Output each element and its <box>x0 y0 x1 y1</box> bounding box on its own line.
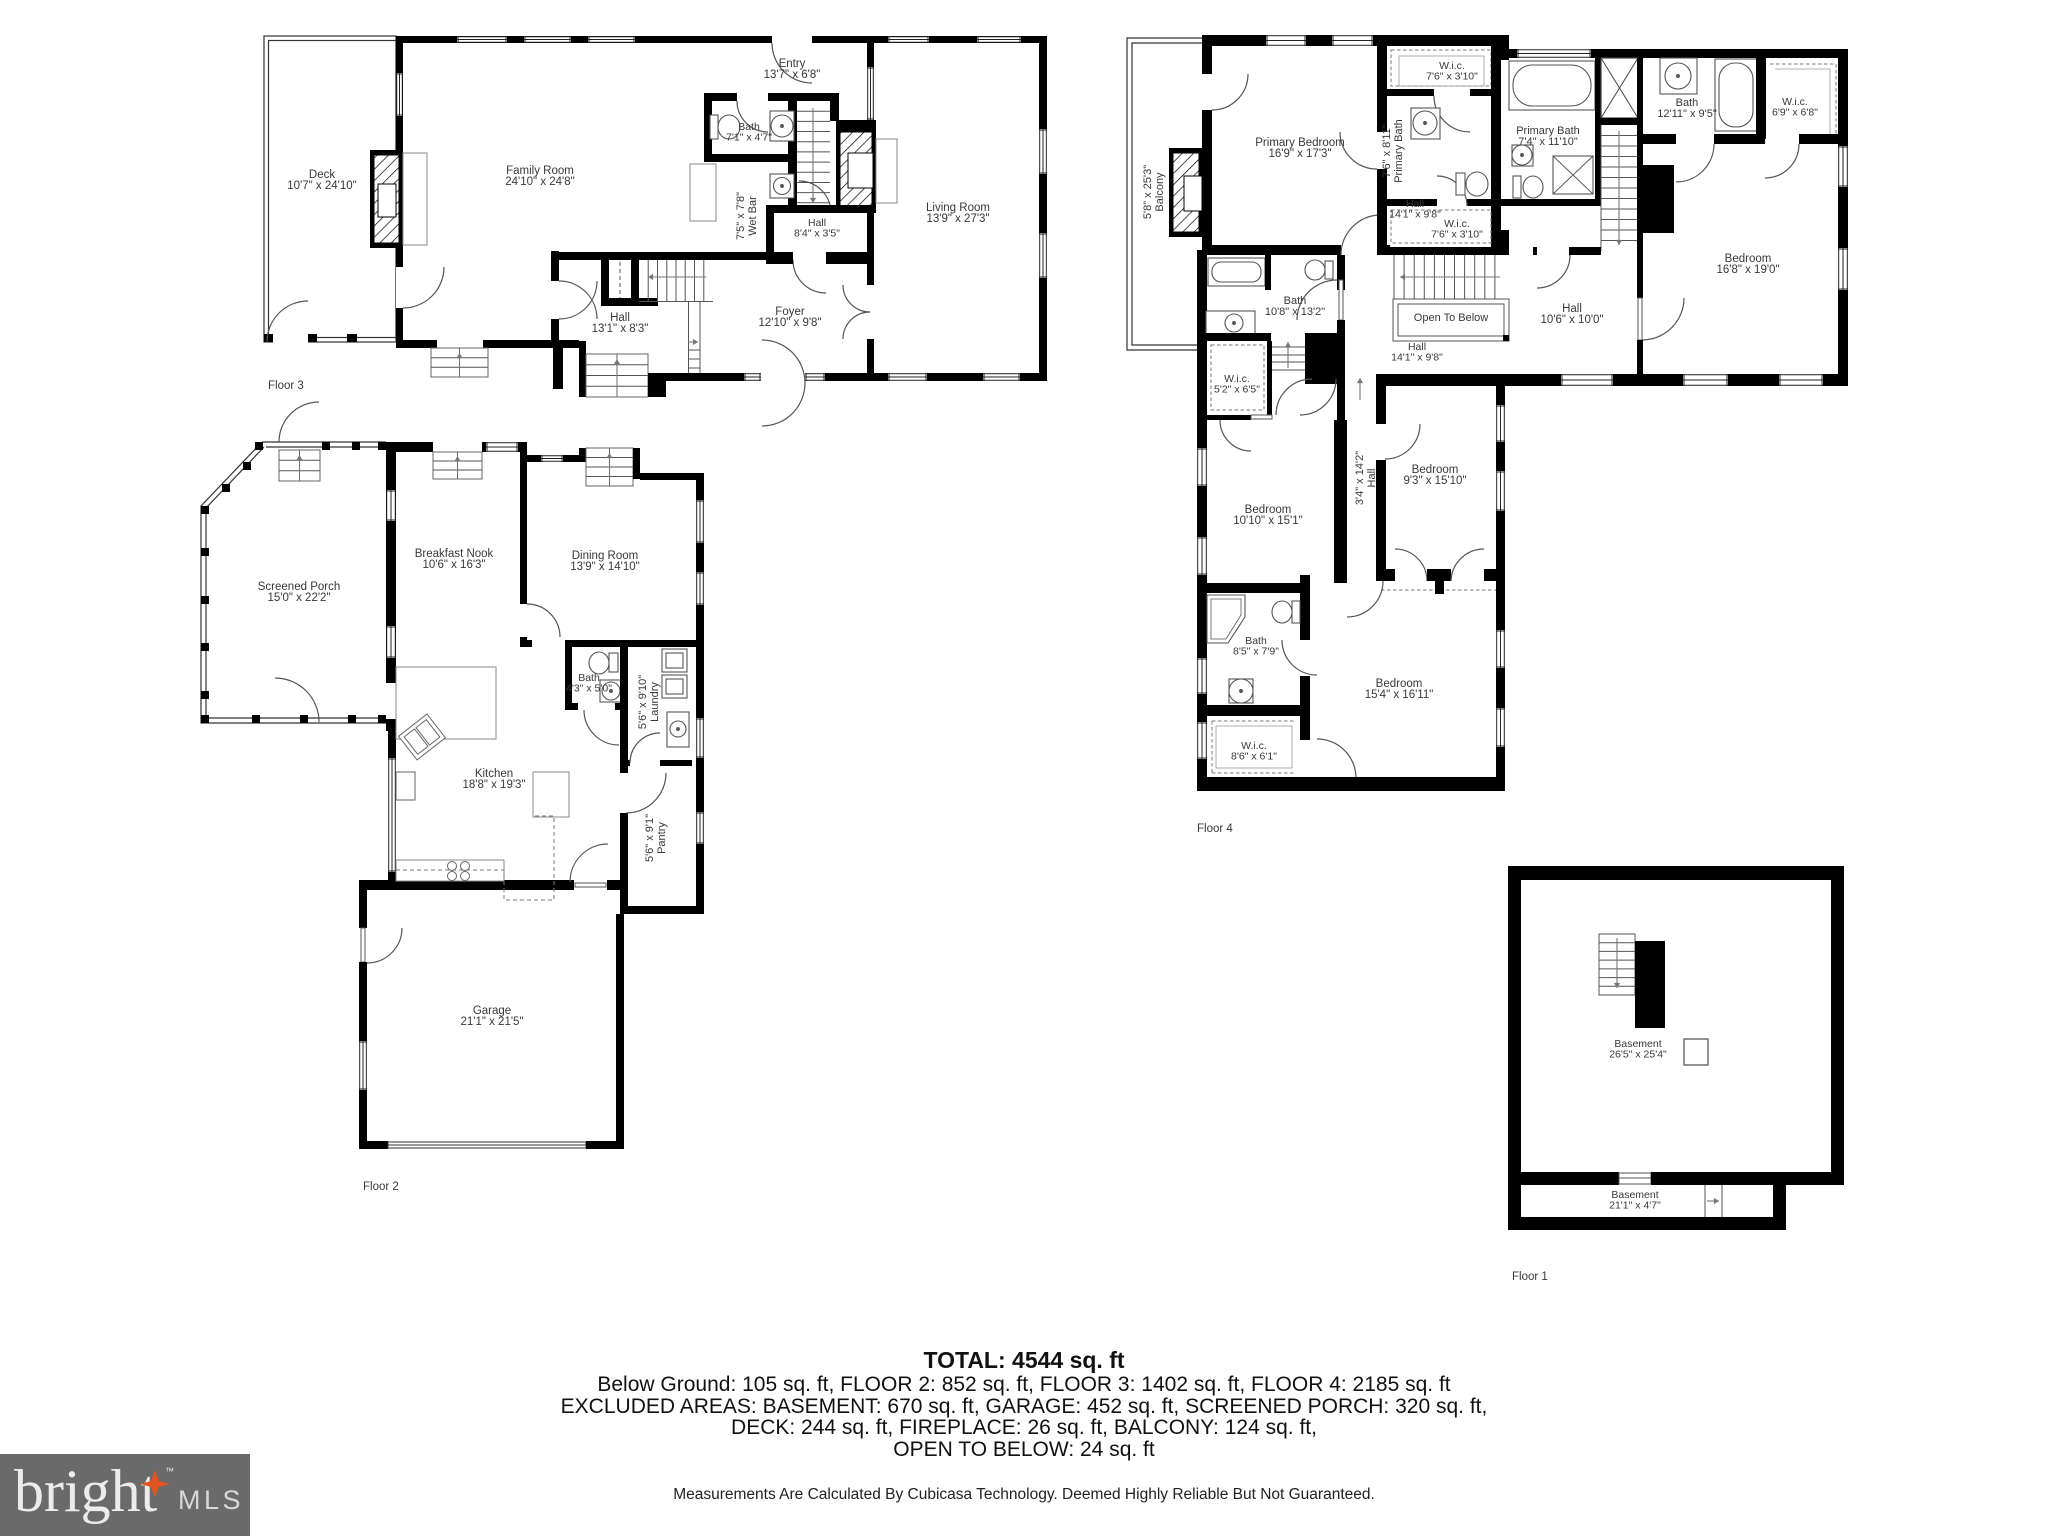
svg-text:14'1" x 9'8": 14'1" x 9'8" <box>1389 209 1441 221</box>
svg-text:16'9" x 17'3": 16'9" x 17'3" <box>1268 148 1331 160</box>
svg-text:16'8" x 19'0": 16'8" x 19'0" <box>1716 264 1779 276</box>
svg-text:8'6" x 6'1": 8'6" x 6'1" <box>1231 751 1277 763</box>
svg-text:Measurements Are Calculated By: Measurements Are Calculated By Cubicasa … <box>673 1486 1375 1503</box>
svg-text:Floor 1: Floor 1 <box>1512 1271 1548 1283</box>
svg-text:Balcony: Balcony <box>1154 172 1166 212</box>
svg-text:MLS: MLS <box>178 1485 244 1515</box>
svg-text:DECK: 244 sq. ft, FIREPLACE: 2: DECK: 244 sq. ft, FIREPLACE: 26 sq. ft, … <box>731 1416 1317 1439</box>
svg-text:13'7" x 6'8": 13'7" x 6'8" <box>764 69 821 81</box>
svg-text:Below Ground: 105 sq. ft, FLOO: Below Ground: 105 sq. ft, FLOOR 2: 852 s… <box>597 1373 1450 1396</box>
svg-text:5'6" x 9'10": 5'6" x 9'10" <box>637 675 649 729</box>
svg-text:EXCLUDED AREAS: BASEMENT: 670: EXCLUDED AREAS: BASEMENT: 670 sq. ft, GA… <box>561 1395 1488 1418</box>
svg-text:Floor 2: Floor 2 <box>363 1181 399 1193</box>
svg-text:7'6" x 3'10": 7'6" x 3'10" <box>1431 229 1483 241</box>
svg-text:24'10" x 24'8": 24'10" x 24'8" <box>505 176 574 188</box>
svg-text:18'8" x 19'3": 18'8" x 19'3" <box>462 779 525 791</box>
svg-text:5'6" x 9'1": 5'6" x 9'1" <box>644 814 656 862</box>
svg-text:14'1" x 9'8": 14'1" x 9'8" <box>1391 352 1443 364</box>
svg-text:21'1" x 4'7": 21'1" x 4'7" <box>1609 1200 1661 1212</box>
svg-text:10'10" x 15'1": 10'10" x 15'1" <box>1233 515 1302 527</box>
svg-text:10'8" x 13'2": 10'8" x 13'2" <box>1265 306 1325 318</box>
svg-text:5'8" x 25'3": 5'8" x 25'3" <box>1142 165 1154 219</box>
svg-text:7'6" x 8'11": 7'6" x 8'11" <box>1381 124 1393 177</box>
svg-text:Wet Bar: Wet Bar <box>747 196 759 236</box>
svg-text:3'4" x 14'2": 3'4" x 14'2" <box>1354 451 1366 505</box>
svg-text:21'1" x 21'5": 21'1" x 21'5" <box>460 1016 523 1028</box>
svg-text:4'3" x 5'0": 4'3" x 5'0" <box>566 683 612 695</box>
svg-text:10'6" x 16'3": 10'6" x 16'3" <box>422 559 485 571</box>
svg-text:7'1" x 4'7": 7'1" x 4'7" <box>726 132 772 144</box>
svg-text:Laundry: Laundry <box>649 682 661 722</box>
svg-text:8'4" x 3'5": 8'4" x 3'5" <box>794 228 840 240</box>
svg-text:15'4" x 16'11": 15'4" x 16'11" <box>1365 689 1434 701</box>
svg-text:10'7" x 24'10": 10'7" x 24'10" <box>287 180 356 192</box>
svg-text:6'9" x 6'8": 6'9" x 6'8" <box>1772 107 1818 119</box>
svg-text:8'5" x 7'9": 8'5" x 7'9" <box>1233 646 1279 658</box>
svg-text:7'4" x 11'10": 7'4" x 11'10" <box>1518 136 1578 148</box>
svg-text:13'9" x 14'10": 13'9" x 14'10" <box>570 561 639 573</box>
svg-text:Pantry: Pantry <box>656 822 668 854</box>
svg-text:12'11" x 9'5": 12'11" x 9'5" <box>1657 108 1717 120</box>
svg-text:Open To Below: Open To Below <box>1414 312 1488 324</box>
svg-text:9'3" x 15'10": 9'3" x 15'10" <box>1403 475 1466 487</box>
svg-text:™: ™ <box>165 1466 174 1476</box>
svg-text:OPEN TO BELOW: 24 sq. ft: OPEN TO BELOW: 24 sq. ft <box>893 1438 1155 1461</box>
svg-text:26'5" x 25'4": 26'5" x 25'4" <box>1609 1049 1667 1061</box>
svg-text:12'10" x 9'8": 12'10" x 9'8" <box>758 317 821 329</box>
svg-text:15'0" x 22'2": 15'0" x 22'2" <box>267 592 330 604</box>
svg-text:7'5" x 7'8": 7'5" x 7'8" <box>735 192 747 240</box>
svg-text:7'6" x 3'10": 7'6" x 3'10" <box>1426 71 1478 83</box>
svg-text:10'6" x 10'0": 10'6" x 10'0" <box>1540 314 1603 326</box>
svg-text:13'1" x 8'3": 13'1" x 8'3" <box>592 323 649 335</box>
svg-text:TOTAL: 4544 sq. ft: TOTAL: 4544 sq. ft <box>923 1347 1124 1373</box>
svg-text:Floor 3: Floor 3 <box>268 380 304 392</box>
svg-text:bright: bright <box>14 1458 158 1524</box>
svg-text:Primary Bath: Primary Bath <box>1393 119 1405 183</box>
svg-text:5'2" x 6'5": 5'2" x 6'5" <box>1214 384 1260 396</box>
svg-text:Floor 4: Floor 4 <box>1197 823 1233 835</box>
svg-text:13'9" x 27'3": 13'9" x 27'3" <box>926 213 989 225</box>
